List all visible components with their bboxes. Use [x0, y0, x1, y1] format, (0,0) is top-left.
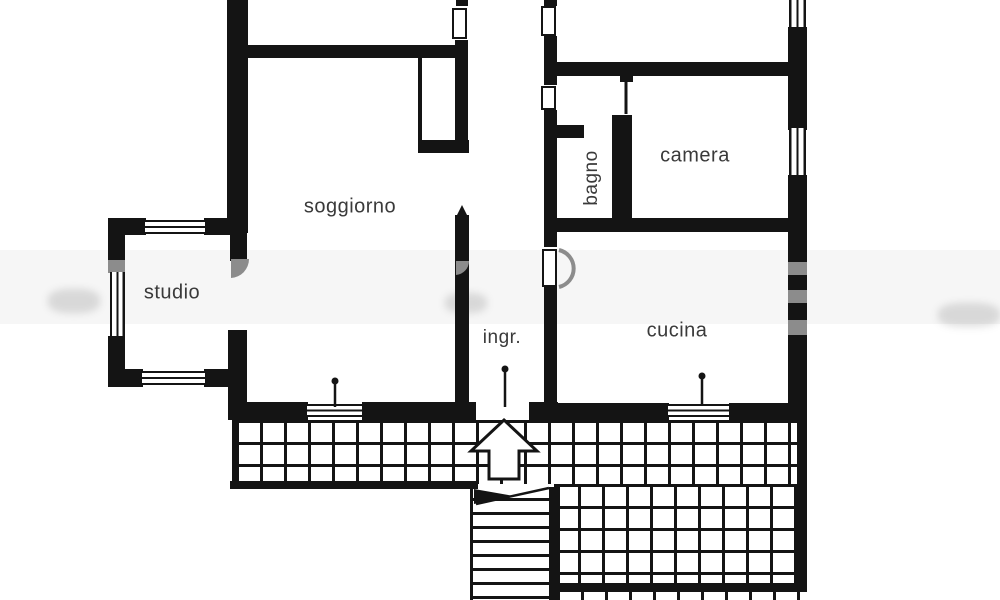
wall: [788, 27, 807, 130]
wall: [557, 403, 669, 420]
wall: [788, 303, 807, 320]
watermark: [938, 303, 1000, 327]
terrace-edge: [551, 583, 807, 592]
wall: [455, 215, 469, 420]
door-hinge: [502, 366, 509, 373]
wall: [108, 218, 146, 235]
door-hinge: [699, 373, 706, 380]
wall: [544, 287, 557, 420]
window: [110, 272, 125, 336]
wall: [544, 36, 557, 85]
wall: [544, 125, 584, 138]
terrace-edge: [797, 420, 807, 590]
room-label-studio: studio: [144, 282, 200, 305]
wall: [544, 218, 797, 232]
terrace-hatch: [554, 484, 798, 586]
wall: [362, 402, 476, 420]
window: [307, 404, 362, 417]
terrace-hatch: [236, 420, 798, 484]
wall: [612, 115, 632, 232]
terrace-edge: [230, 481, 478, 489]
wall: [557, 62, 797, 76]
floor-plan: soggiorno studio bagno camera cucina ing…: [0, 0, 1000, 600]
wall: [245, 45, 458, 58]
door: [541, 86, 556, 110]
window: [145, 220, 205, 234]
wall: [418, 140, 469, 153]
wall: [456, 0, 468, 6]
wall-gray-segment: [788, 290, 807, 303]
window: [789, 0, 806, 27]
door: [542, 249, 557, 287]
room-label-camera: camera: [660, 145, 730, 168]
wall: [620, 74, 633, 82]
closet-door-line: [418, 58, 422, 143]
wall: [227, 0, 248, 233]
terrace-edge: [232, 420, 238, 488]
watermark: [48, 289, 100, 313]
terrace-hatch: [557, 592, 802, 600]
wall-gray-segment: [788, 320, 807, 335]
wall: [788, 275, 807, 290]
wall: [108, 235, 125, 261]
door: [541, 6, 556, 36]
window: [789, 128, 806, 175]
window: [668, 404, 729, 417]
wall: [228, 330, 247, 420]
wall: [788, 175, 807, 262]
wall: [529, 402, 558, 420]
wall-gray-segment: [788, 262, 807, 275]
staircase-wall: [549, 487, 560, 600]
wall: [108, 369, 143, 387]
door: [452, 8, 467, 39]
room-label-ingresso: ingr.: [483, 327, 521, 349]
window: [142, 371, 205, 385]
wall: [455, 40, 468, 152]
wall: [230, 218, 247, 261]
door-hinge: [332, 378, 339, 385]
room-label-cucina: cucina: [647, 320, 708, 343]
wall: [788, 335, 807, 420]
staircase: [473, 498, 549, 600]
room-label-bagno: bagno: [581, 150, 603, 205]
room-label-soggiorno: soggiorno: [304, 196, 396, 219]
